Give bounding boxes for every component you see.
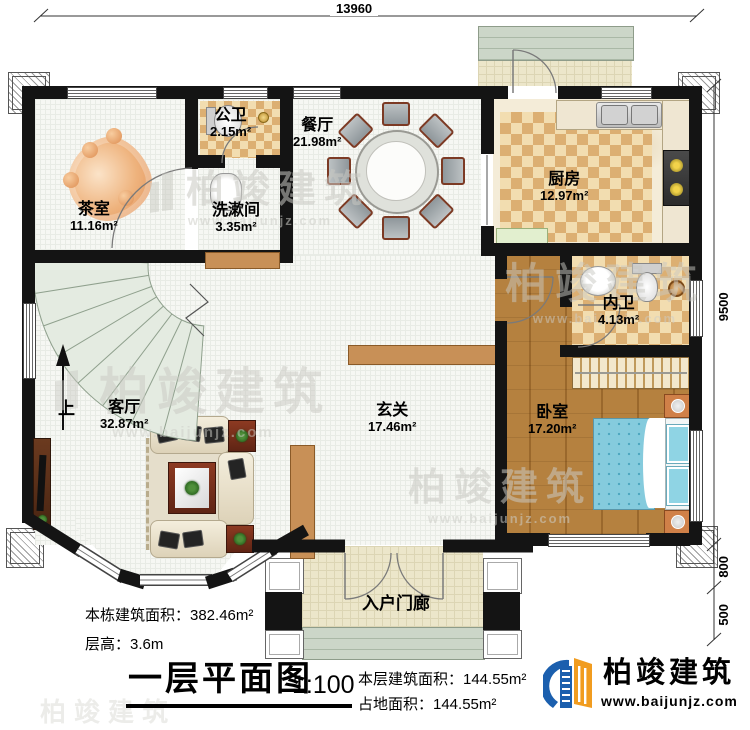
foyer-cabinet	[348, 345, 499, 365]
sofa-pillow	[182, 530, 204, 549]
plant	[38, 515, 47, 524]
pillow	[667, 425, 690, 463]
watermark: 柏竣建筑 www.baijunjz.com	[408, 456, 592, 526]
stairs-up-label: 上	[58, 400, 75, 418]
porch-rail-right-lower	[483, 630, 522, 659]
back-porch-steps	[478, 26, 634, 61]
coffee-table	[168, 462, 216, 514]
entry-porch-steps	[302, 627, 485, 660]
brand-website: www.baijunjz.com	[601, 694, 738, 709]
entry-porch-floor	[302, 546, 483, 628]
gas-stove	[663, 150, 690, 206]
tv	[37, 455, 47, 511]
room-label-bedroom: 卧室 17.20m²	[528, 405, 576, 435]
porch-rail-right-upper	[483, 558, 522, 594]
pillow	[667, 467, 690, 505]
plant	[185, 481, 199, 495]
dim-right-porch: 800	[717, 547, 731, 587]
porch-rail-left-upper	[265, 558, 304, 594]
wall-bedroom-south-a	[495, 533, 550, 546]
sink-basin	[631, 105, 658, 125]
dim-right-main: 9500	[717, 287, 731, 327]
brand-logo-icon	[543, 652, 597, 716]
window-publicwc-north	[223, 87, 268, 99]
hall-cabinet	[205, 252, 280, 269]
wall-tea-south	[22, 250, 198, 263]
watermark: 柏竣建筑 www.baijunjz.com	[55, 352, 331, 441]
title-underline	[126, 704, 352, 708]
nightstand	[664, 394, 692, 418]
room-label-kitchen: 厨房 12.97m²	[540, 172, 588, 202]
sofa-chaise	[218, 452, 254, 525]
tv-cabinet	[33, 438, 51, 530]
sofa-bottom	[150, 520, 228, 558]
plant	[234, 533, 246, 545]
sofa-pillow	[158, 530, 180, 549]
sink-basin	[601, 105, 628, 125]
dim-top-width: 13960	[330, 2, 378, 16]
room-label-living: 客厅 32.87m²	[100, 400, 148, 430]
chair	[382, 216, 410, 240]
tea-stool	[118, 190, 134, 206]
wardrobe-rod	[575, 372, 687, 374]
floor-area: 本层建筑面积：144.55m²	[358, 672, 526, 688]
back-porch-landing	[478, 58, 632, 88]
wardrobe	[572, 357, 690, 389]
room-label-tea: 茶室 11.16m²	[70, 202, 118, 232]
burner	[670, 183, 683, 196]
porch-column-left	[265, 592, 302, 630]
window-stair-west	[23, 303, 36, 379]
chair	[441, 157, 465, 185]
tea-stool	[82, 142, 98, 158]
drawing-title: 一层平面图	[128, 662, 313, 698]
room-label-wash: 洗漱间 3.35m²	[212, 203, 260, 233]
entry-runner	[290, 445, 315, 559]
building-total-area: 本栋建筑面积：382.46m²	[85, 608, 253, 624]
sofa-pillow	[227, 458, 246, 480]
nightstand	[664, 510, 692, 534]
wall-bedroom-south-b	[646, 533, 690, 546]
chair	[382, 102, 410, 126]
window-dining-north	[293, 87, 341, 99]
land-area: 占地面积：144.55m²	[358, 697, 496, 713]
porch-rail-left-lower	[265, 630, 304, 659]
window-bedroom-east	[690, 430, 703, 522]
floor-plan: 13960 9500 800 500 柏竣建筑 www.baijunjz.com…	[0, 0, 750, 730]
window-bedroom-south	[548, 534, 650, 547]
wall-innerwc-south	[560, 345, 690, 357]
room-label-entry-porch: 入户门廊	[362, 595, 430, 613]
room-label-publicwc: 公卫 2.15m²	[210, 108, 251, 138]
drawing-scale: 1:100	[292, 672, 355, 698]
floor-drain	[258, 112, 269, 123]
tea-stool	[106, 128, 122, 144]
floor-height: 层高：3.6m	[85, 637, 163, 653]
watermark-logo-icon	[150, 171, 176, 213]
back-door-opening	[508, 86, 558, 99]
room-label-innerwc: 内卫 4.13m²	[598, 296, 639, 326]
wall-dining-kitchen-a	[481, 99, 494, 154]
burner	[670, 159, 683, 172]
brand-name: 柏竣建筑	[603, 658, 735, 688]
porch-column-right	[483, 592, 520, 630]
bed	[593, 418, 689, 508]
room-label-foyer: 玄关 17.46m²	[368, 403, 416, 433]
room-label-dining: 餐厅 21.98m²	[293, 118, 341, 148]
side-table	[226, 525, 254, 553]
bed-fold	[643, 418, 666, 508]
window-tea-north	[67, 87, 157, 99]
tea-stool	[63, 172, 79, 188]
dim-right-steps: 500	[717, 595, 731, 635]
window-kitchen-north	[601, 87, 652, 99]
